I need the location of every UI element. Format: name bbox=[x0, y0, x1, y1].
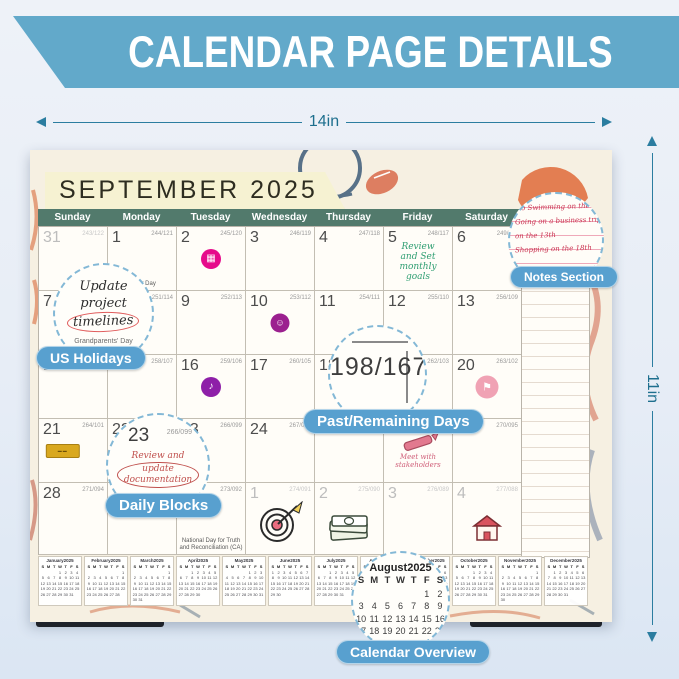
mini-month-February2025: February2025SMTWTFS123456789101112131415… bbox=[84, 556, 128, 606]
height-dimension: 11in bbox=[639, 136, 665, 642]
callout-notes-section: Notes Section bbox=[510, 266, 618, 288]
day-number: 28 bbox=[43, 485, 61, 503]
calendar-cell-21: 21264/101▬▬ bbox=[39, 419, 108, 483]
day-counter: 276/089 bbox=[427, 487, 449, 493]
callout-calendar-overview: Calendar Overview bbox=[336, 640, 490, 664]
calendar-cell-13: 13256/109 bbox=[453, 291, 522, 355]
house-doodle-icon bbox=[470, 513, 504, 548]
weekday-header: Friday bbox=[383, 212, 452, 223]
handwritten-note: Review and update documentation bbox=[108, 451, 208, 488]
note-line: Shopping on the 18th bbox=[510, 240, 602, 257]
day-number: 10 bbox=[250, 293, 268, 311]
arrow-right-icon bbox=[602, 117, 612, 127]
day-number: 23 bbox=[128, 425, 149, 447]
sticker-violet-icon: ♪ bbox=[201, 377, 221, 397]
day-number: 24 bbox=[250, 421, 268, 439]
callout-past-remaining-days: Past/Remaining Days bbox=[303, 409, 484, 434]
day-counter: 266/099 bbox=[167, 429, 192, 436]
day-counter: 244/121 bbox=[151, 231, 173, 237]
mini-month-August2025: August2025SMTWTFS12345678910111213141516… bbox=[353, 553, 448, 650]
arrow-down-icon bbox=[647, 632, 657, 642]
day-counter: 253/112 bbox=[290, 295, 311, 301]
day-number: 4 bbox=[319, 229, 328, 247]
day-number: 2 bbox=[319, 485, 328, 503]
day-counter: 251/114 bbox=[152, 295, 173, 301]
crayon-doodle-icon bbox=[396, 431, 440, 458]
day-counter: 277/088 bbox=[496, 487, 518, 493]
day-counter: 266/099 bbox=[220, 423, 242, 429]
holiday-label: National Day for Truth and Reconciliatio… bbox=[179, 538, 243, 552]
month-title-tag: SEPTEMBER 2025 bbox=[45, 172, 345, 209]
weekday-header: Thursday bbox=[314, 212, 383, 223]
lens-august-overview: August2025SMTWTFS12345678910111213141516… bbox=[351, 551, 450, 650]
weekday-header: Tuesday bbox=[176, 212, 245, 223]
day-counter: 245/120 bbox=[220, 231, 242, 237]
day-counter: 252/113 bbox=[221, 295, 242, 301]
calendar-cell-2: 2245/120▦ bbox=[177, 227, 246, 291]
weekday-header: Wednesday bbox=[245, 212, 314, 223]
day-number: 3 bbox=[388, 485, 397, 503]
calendar-cell-28: 28271/094 bbox=[39, 483, 108, 555]
day-counter: 271/094 bbox=[82, 487, 104, 493]
day-number: 2 bbox=[181, 229, 190, 247]
day-counter: 246/119 bbox=[290, 231, 311, 237]
weekday-header: Monday bbox=[107, 212, 176, 223]
calendar-cell-3: 3276/089 bbox=[384, 483, 453, 555]
day-number: 16 bbox=[181, 357, 199, 375]
mini-month-December2025: December2025SMTWTFS123456789101112131415… bbox=[544, 556, 588, 606]
page-title: CALENDAR PAGE DETAILS bbox=[79, 27, 613, 78]
mini-month-label: August2025 bbox=[353, 561, 448, 575]
arrow-up-icon bbox=[647, 136, 657, 146]
arrow-left-icon bbox=[36, 117, 46, 127]
day-counter: 270/095 bbox=[496, 423, 518, 429]
day-number: 12 bbox=[388, 293, 406, 311]
day-counter: 243/122 bbox=[82, 231, 104, 237]
mini-month-January2025: January2025SMTWTFS1234567891011121314151… bbox=[38, 556, 82, 606]
width-dimension: 14in bbox=[36, 113, 612, 131]
day-number: 9 bbox=[181, 293, 190, 311]
day-counter: 264/101 bbox=[82, 423, 104, 429]
month-title: SEPTEMBER 2025 bbox=[45, 176, 318, 205]
day-counter: 259/106 bbox=[220, 359, 242, 365]
day-counter: 275/090 bbox=[358, 487, 380, 493]
year-overview-strip: January2025SMTWTFS1234567891011121314151… bbox=[38, 556, 588, 606]
day-counter: 260/105 bbox=[289, 359, 311, 365]
mini-month-March2025: March2025SMTWTFS123456789101112131415161… bbox=[130, 556, 174, 606]
handwritten-note: Reviewand Setmonthlygoals bbox=[384, 242, 452, 282]
width-label: 14in bbox=[309, 113, 339, 131]
calendar-cell-3: 3246/119 bbox=[246, 227, 315, 291]
day-counter: 254/111 bbox=[359, 295, 380, 301]
day-number: 7 bbox=[43, 293, 52, 311]
day-number: 3 bbox=[250, 229, 259, 247]
weekday-header: Sunday bbox=[38, 212, 107, 223]
day-number: 31 bbox=[43, 229, 61, 247]
day-counter: 274/091 bbox=[289, 487, 311, 493]
sticker-tag-icon: ▬▬ bbox=[46, 444, 80, 458]
handwritten-note: Update project timelines bbox=[55, 278, 152, 332]
day-counter: 247/118 bbox=[359, 231, 380, 237]
dartboard-doodle-icon bbox=[257, 501, 303, 548]
calendar-product-infographic: CALENDAR PAGE DETAILS 14in 11in bbox=[0, 0, 679, 679]
calendar-cell-2: 2275/090 bbox=[315, 483, 384, 555]
day-number: 11 bbox=[319, 293, 336, 311]
day-number: 4 bbox=[457, 485, 466, 503]
past-remaining-counter: 198/167 bbox=[330, 353, 425, 382]
calendar-cell-9: 9252/113 bbox=[177, 291, 246, 355]
weekday-header-row: SundayMondayTuesdayWednesdayThursdayFrid… bbox=[38, 209, 521, 226]
height-label: 11in bbox=[643, 374, 661, 403]
holiday-label: Grandparents' Day bbox=[55, 338, 152, 345]
day-counter: 255/110 bbox=[428, 295, 449, 301]
day-number: 5 bbox=[388, 229, 397, 247]
day-counter: 263/102 bbox=[496, 359, 518, 365]
day-number: 13 bbox=[457, 293, 475, 311]
calendar-cell-5: 5248/117Reviewand Setmonthlygoals bbox=[384, 227, 453, 291]
mini-month-April2025: April2025SMTWTFS123456789101112131415161… bbox=[176, 556, 220, 606]
day-counter: 273/092 bbox=[220, 487, 242, 493]
day-number: 1 bbox=[112, 229, 121, 247]
calendar-cell-1: 1274/091 bbox=[246, 483, 315, 555]
calendar-cell-4: 4247/118 bbox=[315, 227, 384, 291]
sticker-pink-icon: ▦ bbox=[201, 249, 221, 269]
sticker-purple-icon: ☺ bbox=[271, 313, 290, 332]
mini-month-May2025: May2025SMTWTFS12345678910111213141516171… bbox=[222, 556, 266, 606]
title-banner: CALENDAR PAGE DETAILS bbox=[13, 16, 679, 88]
sticker-rose-icon: ⚑ bbox=[476, 375, 499, 398]
mini-month-June2025: June2025SMTWTFS1234567891011121314151617… bbox=[268, 556, 312, 606]
day-counter: 256/109 bbox=[496, 295, 518, 301]
day-number: 17 bbox=[250, 357, 268, 375]
calendar-cell-17: 17260/105 bbox=[246, 355, 315, 419]
callout-us-holidays: US Holidays bbox=[36, 346, 146, 370]
money-doodle-icon bbox=[328, 513, 370, 548]
day-number: 6 bbox=[457, 229, 466, 247]
calendar-cell-10: 10253/112☺ bbox=[246, 291, 315, 355]
mini-month-November2025: November2025SMTWTFS123456789101112131415… bbox=[498, 556, 542, 606]
day-counter: 258/107 bbox=[151, 359, 173, 365]
day-counter: 262/103 bbox=[427, 359, 449, 365]
day-number: 21 bbox=[43, 421, 61, 439]
day-number: 20 bbox=[457, 357, 475, 375]
calendar-cell-16: 16259/106♪ bbox=[177, 355, 246, 419]
day-counter: 248/117 bbox=[428, 231, 449, 237]
mini-month-October2025: October2025SMTWTFS1234567891011121314151… bbox=[452, 556, 496, 606]
calendar-cell-4: 4277/088 bbox=[453, 483, 522, 555]
callout-daily-blocks: Daily Blocks bbox=[105, 493, 222, 518]
